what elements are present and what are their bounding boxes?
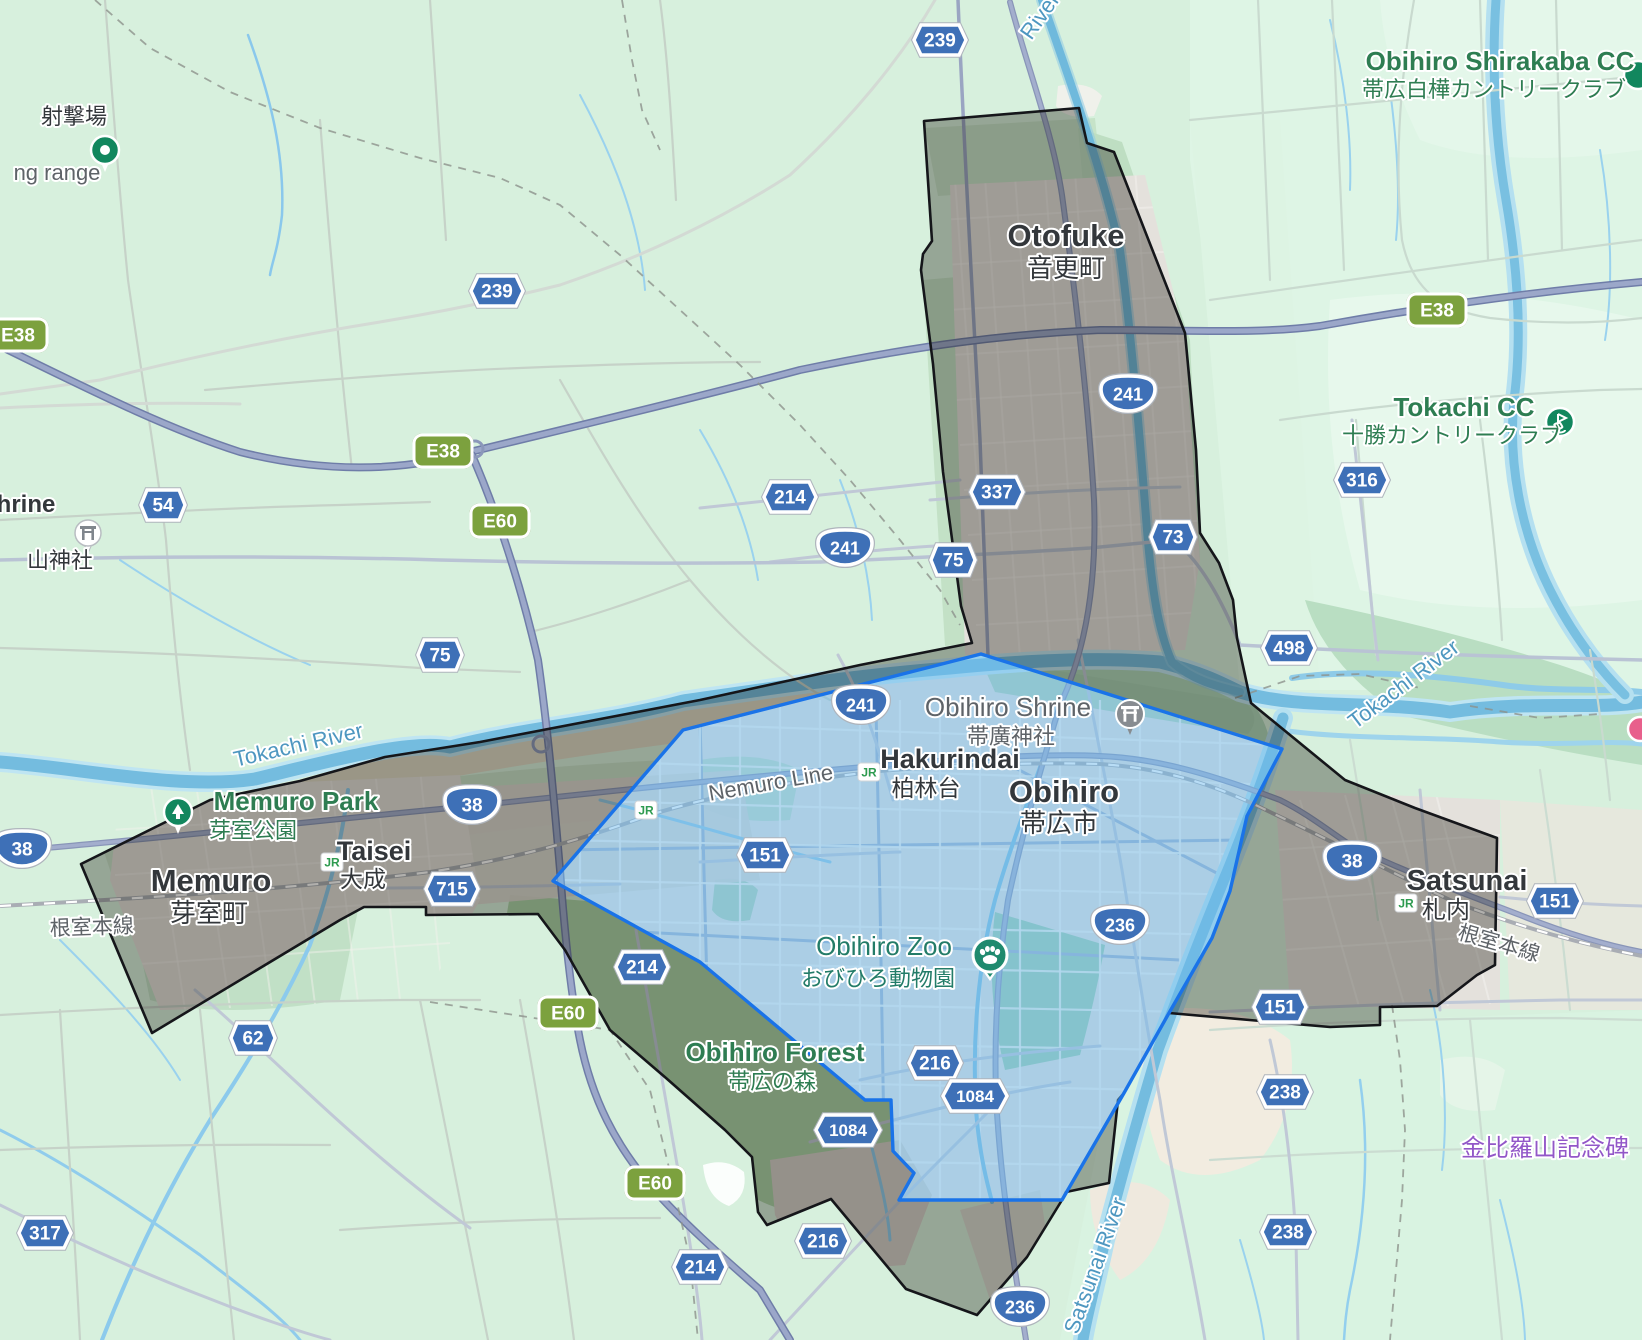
svg-text:おびひろ動物園: おびひろ動物園 <box>801 966 955 991</box>
svg-text:芽室町: 芽室町 <box>170 898 248 928</box>
svg-text:柏林台: 柏林台 <box>892 775 961 801</box>
svg-text:54: 54 <box>152 496 174 517</box>
svg-text:151: 151 <box>1539 892 1571 913</box>
svg-text:214: 214 <box>626 958 658 979</box>
svg-text:十勝カントリークラブ: 十勝カントリークラブ <box>1342 423 1562 448</box>
svg-text:38: 38 <box>1341 852 1362 873</box>
svg-text:大成: 大成 <box>340 866 386 892</box>
svg-text:Obihiro Shrine: Obihiro Shrine <box>925 692 1091 722</box>
svg-text:715: 715 <box>436 880 468 901</box>
svg-text:E60: E60 <box>551 1004 585 1025</box>
svg-text:62: 62 <box>242 1029 263 1050</box>
svg-text:E60: E60 <box>638 1174 672 1195</box>
svg-text:E60: E60 <box>483 512 517 533</box>
svg-text:札内: 札内 <box>1422 897 1470 924</box>
svg-text:芽室公園: 芽室公園 <box>209 818 297 843</box>
svg-text:38: 38 <box>461 796 482 817</box>
svg-text:238: 238 <box>1269 1083 1301 1104</box>
svg-text:1084: 1084 <box>829 1121 867 1140</box>
svg-text:498: 498 <box>1273 639 1305 660</box>
svg-text:241: 241 <box>846 696 876 716</box>
svg-text:JR: JR <box>1398 897 1414 911</box>
svg-text:239: 239 <box>481 282 513 303</box>
svg-text:1084: 1084 <box>956 1087 994 1106</box>
svg-text:Obihiro Zoo: Obihiro Zoo <box>816 931 952 961</box>
svg-text:337: 337 <box>981 483 1013 504</box>
svg-text:音更町: 音更町 <box>1027 253 1105 283</box>
svg-text:239: 239 <box>924 31 956 52</box>
svg-text:151: 151 <box>1264 998 1296 1019</box>
svg-text:216: 216 <box>919 1054 951 1075</box>
svg-text:Memuro Park: Memuro Park <box>214 786 379 816</box>
svg-text:151: 151 <box>749 846 781 867</box>
svg-text:Hakurindai: Hakurindai <box>880 744 1020 774</box>
svg-text:241: 241 <box>1113 385 1143 405</box>
svg-text:236: 236 <box>1005 1298 1035 1318</box>
svg-text:Memuro: Memuro <box>151 863 272 898</box>
svg-text:Tokachi CC: Tokachi CC <box>1393 392 1534 422</box>
svg-text:帯広市: 帯広市 <box>1020 808 1098 838</box>
svg-text:317: 317 <box>29 1224 61 1245</box>
svg-text:E38: E38 <box>1 326 35 347</box>
svg-text:216: 216 <box>807 1232 839 1253</box>
svg-text:E38: E38 <box>426 442 460 463</box>
svg-text:214: 214 <box>774 488 806 509</box>
svg-text:帯広の森: 帯広の森 <box>728 1069 816 1094</box>
svg-text:238: 238 <box>1272 1223 1304 1244</box>
svg-text:帯広白樺カントリークラブ: 帯広白樺カントリークラブ <box>1362 77 1626 102</box>
svg-text:hrine: hrine <box>0 491 55 518</box>
svg-text:Obihiro Forest: Obihiro Forest <box>685 1037 864 1067</box>
svg-text:山神社: 山神社 <box>27 548 93 573</box>
svg-text:Obihiro Shirakaba CC: Obihiro Shirakaba CC <box>1366 46 1635 76</box>
svg-text:316: 316 <box>1346 471 1378 492</box>
svg-text:JR: JR <box>638 804 654 818</box>
svg-text:JR: JR <box>861 766 877 780</box>
svg-text:ng range: ng range <box>14 160 101 185</box>
svg-text:75: 75 <box>429 646 451 667</box>
svg-text:E38: E38 <box>1420 301 1454 322</box>
svg-text:73: 73 <box>1162 528 1183 549</box>
svg-text:金比羅山記念碑: 金比羅山記念碑 <box>1461 1135 1629 1162</box>
svg-text:Obihiro: Obihiro <box>1009 774 1119 809</box>
svg-text:射撃場: 射撃場 <box>41 104 107 129</box>
svg-text:Taisei: Taisei <box>337 836 412 866</box>
svg-text:75: 75 <box>942 551 964 572</box>
svg-text:38: 38 <box>11 840 32 861</box>
svg-text:214: 214 <box>684 1258 716 1279</box>
svg-text:Satsunai: Satsunai <box>1407 865 1528 897</box>
svg-text:236: 236 <box>1105 916 1135 936</box>
svg-text:241: 241 <box>830 539 860 559</box>
svg-text:根室本線: 根室本線 <box>49 915 134 941</box>
svg-text:Otofuke: Otofuke <box>1007 218 1124 253</box>
